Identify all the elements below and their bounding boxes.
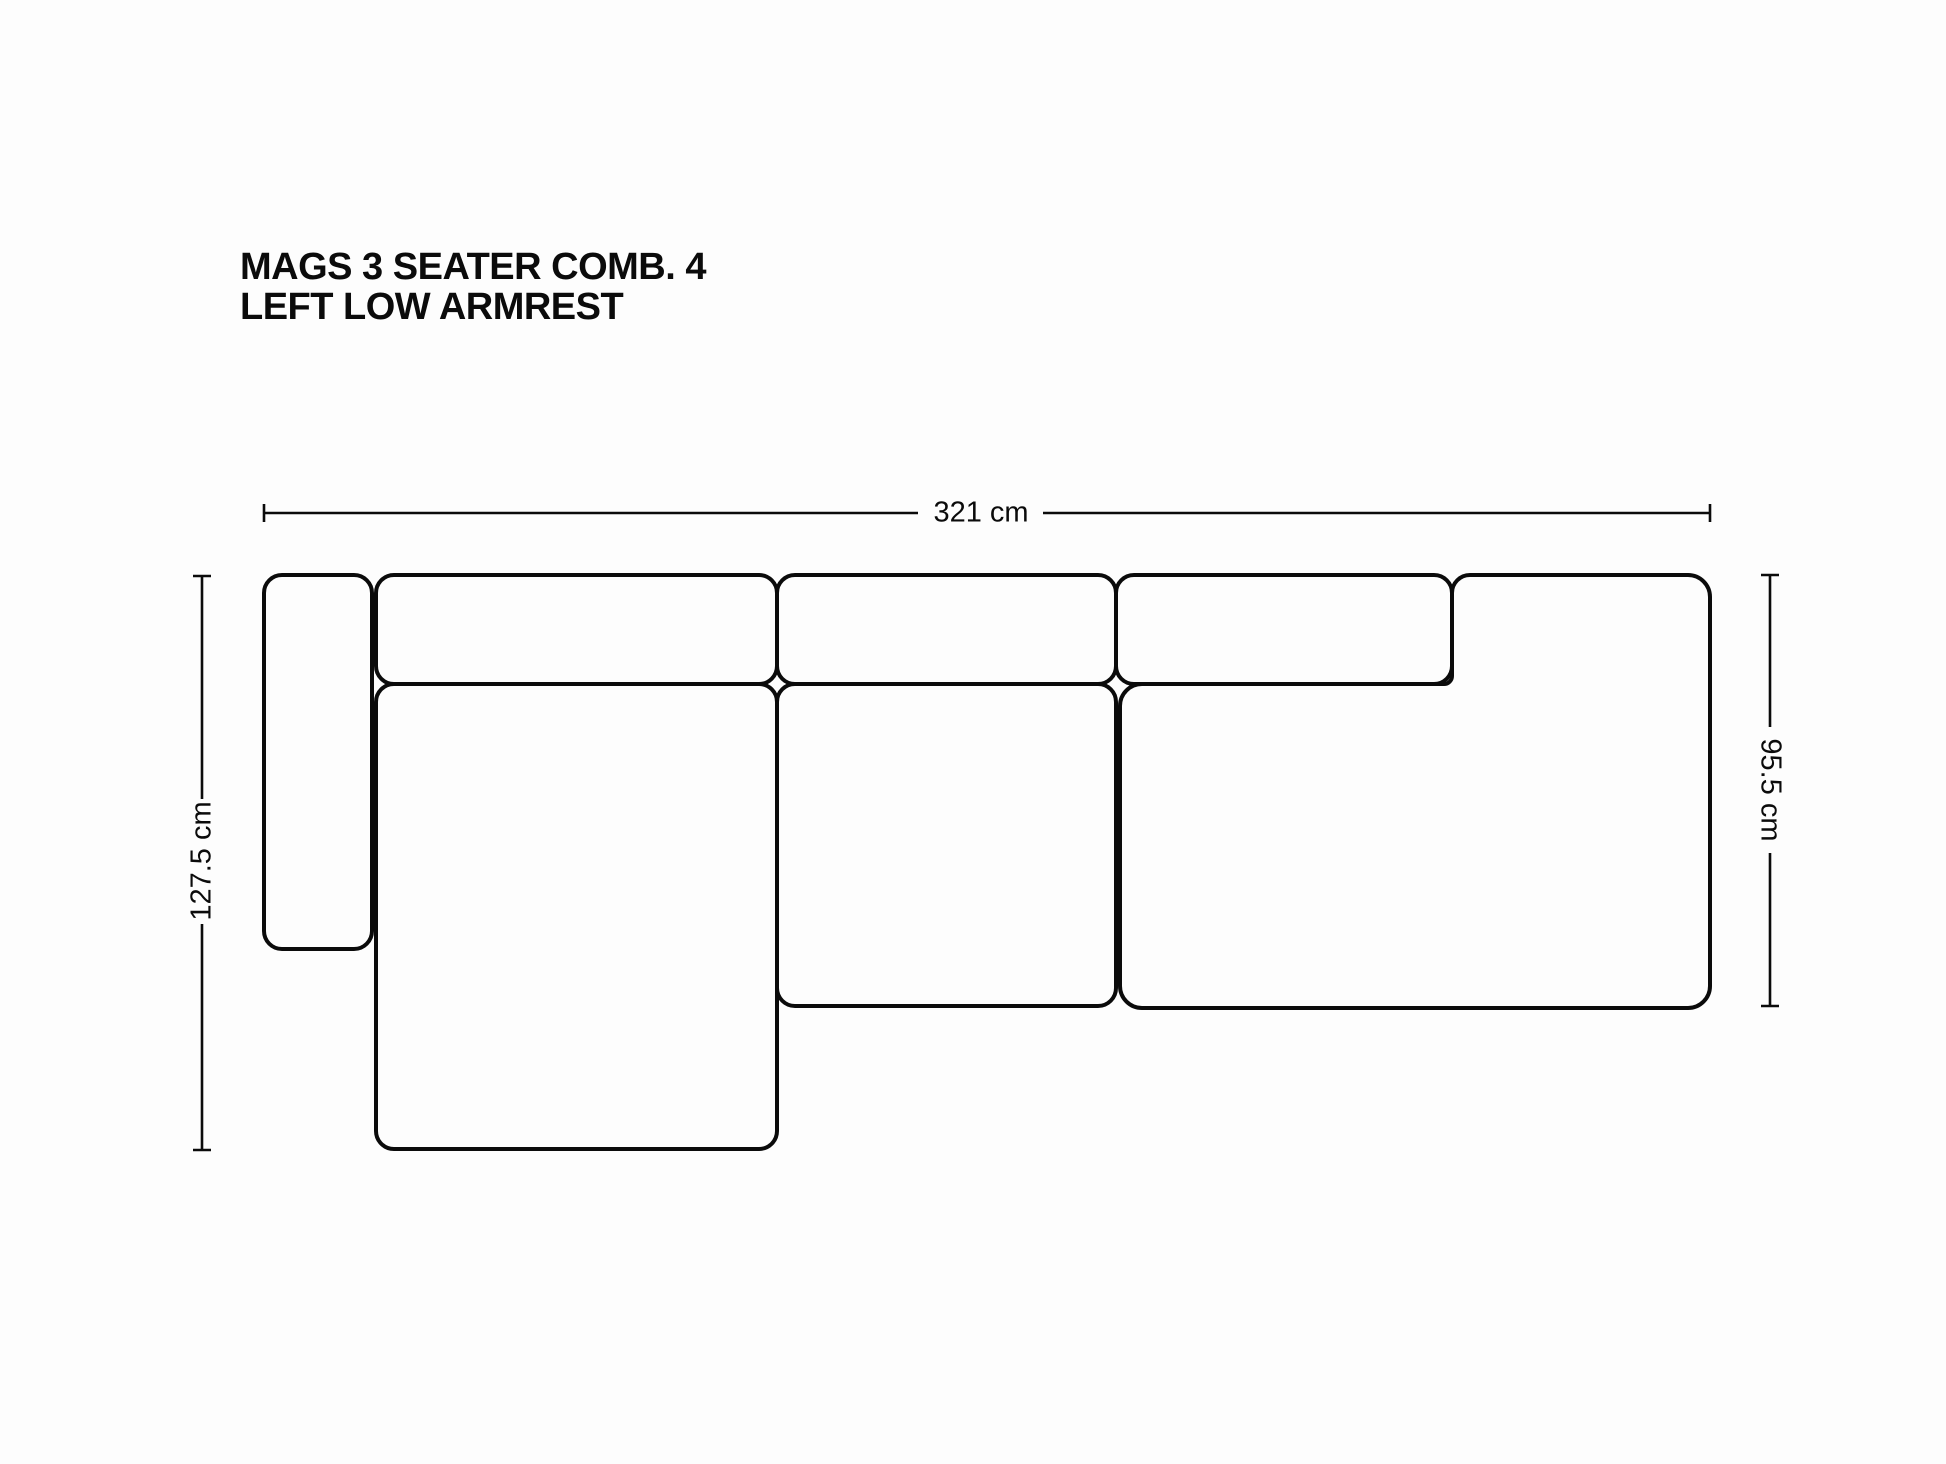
product-title: MAGS 3 SEATER COMB. 4 LEFT LOW ARMREST — [240, 247, 706, 327]
width-dimension-label: 321 cm — [933, 497, 1028, 530]
depth-dimension-label: 95.5 cm — [1754, 738, 1787, 841]
backrest-panel-2 — [777, 575, 1116, 684]
corner-module-panel — [1120, 575, 1710, 1008]
backrest-panel-3 — [1116, 575, 1452, 684]
sofa-outline — [264, 575, 1710, 1149]
product-title-line-1: MAGS 3 SEATER COMB. 4 — [240, 247, 706, 287]
backrest-panel-1 — [376, 575, 777, 684]
chaise-seat-panel — [376, 684, 777, 1149]
sofa-dimension-diagram: MAGS 3 SEATER COMB. 4 LEFT LOW ARMREST 3… — [0, 0, 1946, 1464]
product-title-line-2: LEFT LOW ARMREST — [240, 287, 706, 327]
sofa-drawing-svg — [0, 0, 1946, 1464]
armrest-panel — [264, 575, 372, 949]
middle-seat-panel — [777, 684, 1116, 1006]
height-dimension-label: 127.5 cm — [186, 801, 219, 920]
